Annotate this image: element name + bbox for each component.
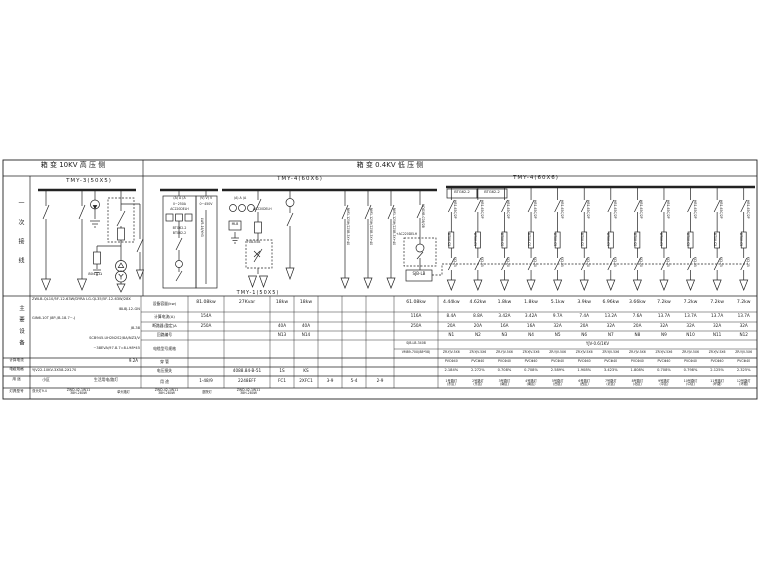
- feeder-meter-label: BT08-C5: [739, 233, 742, 259]
- table-cell: 16A: [518, 324, 545, 328]
- feeder-breaker-label: HB1-63C/2P: [480, 200, 483, 230]
- table-cell: 3.42A: [491, 314, 518, 318]
- feeder-contactor-label: KCJ-20: [639, 257, 642, 281]
- table-cell: 154A: [188, 314, 224, 318]
- table-cell: 4.44kw: [438, 301, 465, 306]
- lv-bus2-label: TMY-4(60X6): [496, 176, 576, 182]
- table-cell: 电缆型号规格: [141, 347, 188, 351]
- table-cell: PVCΦ40: [438, 360, 465, 363]
- feeder-contactor-label: KCJ-25: [745, 257, 748, 281]
- table-cell: 13.2A: [597, 314, 624, 318]
- schematic-lines: [0, 0, 760, 570]
- table-cell: 4.62kw: [465, 301, 492, 306]
- feeder-breaker-label: HB1-63C/2P: [453, 200, 456, 230]
- panel-a-range: 0~250A: [164, 203, 195, 206]
- feeder-breaker-label: HB1-63C/2P: [506, 200, 509, 230]
- control-box-label: SJB-LB: [406, 272, 432, 276]
- table-cell: 穿 管: [141, 360, 188, 364]
- feeder-contactor-label: KCJ-20: [506, 257, 509, 281]
- table-cell: 61.08kw: [394, 301, 438, 306]
- table-cell: 13.7A: [704, 314, 731, 318]
- table-cell: ZR-YJV-5X6: [544, 351, 571, 354]
- table-cell: 0.798%: [677, 369, 704, 373]
- feeder-breaker-label: HB1-63C/2P: [639, 200, 642, 230]
- panel-a-header: (A) A (A: [164, 197, 195, 200]
- table-cell: PVCΦ40: [730, 360, 757, 363]
- lv-title: 箱 变 0.4KV 低 压 侧: [250, 162, 530, 173]
- hv-ground-label: 8044.Ω: [78, 272, 102, 276]
- table-cell: N1: [438, 333, 465, 337]
- feeder-contactor-label: KCJ-25: [559, 257, 562, 281]
- lamp-name: 双头灯9.4: [30, 390, 49, 393]
- feeder-meter-label: BT08-C5: [606, 233, 609, 259]
- table-cell: 32A: [677, 324, 704, 328]
- panel-v-range: 0~450V: [196, 203, 216, 206]
- feeder-contactor-label: KCJ-25: [666, 257, 669, 281]
- table-cell: 3.66kw: [624, 301, 651, 306]
- table-cell: FC1: [270, 379, 294, 383]
- table-cell: PVCΦ40: [597, 360, 624, 363]
- special-feeder-breaker: HDGXB-C08/2B: [421, 204, 424, 238]
- lamp-model: ZWD-42-1W11 38H-280W: [140, 389, 193, 396]
- bus1-feeder-label: NM1-125H/225B-3X+40: [346, 208, 349, 250]
- table-cell: YJV-0.6/1KV: [438, 342, 757, 346]
- lv-riser-label: TMY-1(50X5): [230, 291, 286, 296]
- row-label-usage: 用 途: [4, 378, 29, 382]
- table-cell: 断路器(整定)A: [141, 324, 188, 328]
- table-cell: ZR-YJV-5X6: [597, 351, 624, 354]
- table-cell: N13: [270, 333, 294, 337]
- hv-bus-label: TMY-3(50X5): [52, 179, 126, 185]
- row-label-lamp: 灯具型号: [4, 390, 29, 394]
- table-cell: PVCΦ40: [465, 360, 492, 363]
- table-cell: PVCΦ40: [677, 360, 704, 363]
- incoming-aux: AC220DELH: [253, 208, 285, 211]
- panel-a-aux: AC220DELH: [163, 208, 196, 211]
- table-cell: 3.423%: [597, 369, 624, 373]
- table-cell: PVCΦ40: [518, 360, 545, 363]
- lamp-name: 单头路灯: [110, 391, 137, 394]
- panel-a-device: BT062-2: [164, 232, 195, 235]
- table-cell: 40A: [294, 324, 318, 328]
- panel-a-device: BTG62-2: [164, 227, 195, 230]
- table-cell: 20A: [438, 324, 465, 328]
- table-cell: 2号路灯 (东区): [465, 380, 492, 387]
- table-cell: 13.7A: [730, 314, 757, 318]
- table-cell: 5号路灯 (西区): [544, 380, 571, 387]
- table-cell: ZR-YJV-5X6: [438, 351, 465, 354]
- hv-equipment-spec: I8L8J-12-GN: [32, 308, 140, 312]
- table-cell: 2.325%: [730, 369, 757, 373]
- table-cell: 2248EFF: [224, 379, 270, 383]
- incoming-box-label: MLB: [229, 223, 241, 226]
- table-cell: 5-4: [342, 379, 366, 383]
- table-cell: 2.184%: [438, 369, 465, 373]
- table-cell: 11号路灯 (环路): [704, 380, 731, 387]
- feeder-meter-label: BT08-C5: [447, 233, 450, 259]
- feeder-breaker-label: HB1-63C/2P: [666, 200, 669, 230]
- table-cell: 8.8A: [465, 314, 492, 318]
- table-cell: PVCΦ40: [704, 360, 731, 363]
- table-cell: 3号路灯 (南区): [491, 380, 518, 387]
- feeder-breaker-label: HB1-63C/2P: [745, 200, 748, 230]
- hv-equipment-spec: SCB945-UH2N2S2/8A/NZ3/V: [32, 337, 140, 341]
- table-cell: ZR-YJV-5X6: [651, 351, 678, 354]
- lamp-name: 庭院灯: [197, 391, 217, 394]
- table-cell: N12: [730, 333, 757, 337]
- table-cell: 8.4A: [438, 314, 465, 318]
- row-label-cable: 电缆规格: [4, 368, 29, 372]
- table-cell: SJB-LB-3408: [394, 342, 438, 345]
- table-cell: PVCΦ40: [651, 360, 678, 363]
- drawing-canvas: 箱 变 10KV 高 压 侧 箱 变 0.4KV 低 压 侧 TMY-3(50X…: [0, 0, 760, 570]
- table-cell: 4088.84-B-51: [224, 369, 270, 373]
- table-cell: N7: [597, 333, 624, 337]
- table-cell: 2.272%: [465, 369, 492, 373]
- hv-usage: 生活用电/路灯: [74, 378, 138, 382]
- panel-v-selector: LW5-16/YH3: [200, 218, 203, 252]
- table-cell: 回路编号: [141, 333, 188, 337]
- table-cell: 2-9: [366, 379, 394, 383]
- feeder-meter-label: BT08-C5: [473, 233, 476, 259]
- table-cell: 7.4A: [571, 314, 598, 318]
- table-cell: 3-9: [318, 379, 342, 383]
- table-cell: 0.708%: [518, 369, 545, 373]
- feeder-contactor-label: KCJ-25: [692, 257, 695, 281]
- table-cell: PVCΦ40: [491, 360, 518, 363]
- table-cell: KS: [294, 369, 318, 373]
- table-cell: N5: [544, 333, 571, 337]
- table-cell: N11: [704, 333, 731, 337]
- feeder-breaker-label: HB1-63C/2P: [613, 200, 616, 230]
- feeder-meter-label: BT08-C5: [659, 233, 662, 259]
- feeder-contactor-label: KCJ-20: [533, 257, 536, 281]
- feeder-contactor-label: KCJ-20: [586, 257, 589, 281]
- table-cell: N9: [651, 333, 678, 337]
- table-cell: 1.908%: [571, 369, 598, 373]
- table-cell: PVCΦ40: [544, 360, 571, 363]
- table-cell: N10: [677, 333, 704, 337]
- hv-equipment-spec: ZWLB-QL10/5F-12-63W/DYRA LG-QL35/5F-12-6…: [32, 298, 140, 302]
- table-cell: 0.708%: [651, 369, 678, 373]
- feeder-contactor-label: KCJ-25: [453, 257, 456, 281]
- table-cell: 13.7A: [677, 314, 704, 318]
- bus1-feeder-label: NM1-125H/225B-3X+40: [369, 208, 372, 250]
- table-cell: ZR-YJV-5X6: [465, 351, 492, 354]
- feeder-meter-label: BT08-C0: [633, 233, 636, 259]
- table-cell: 用 途: [141, 380, 188, 384]
- table-cell: 1-48/9: [188, 379, 224, 383]
- table-cell: 6.96kw: [597, 301, 624, 306]
- table-cell: 250A: [394, 324, 438, 328]
- table-cell: 9号路灯 (中区): [651, 380, 678, 387]
- table-cell: 7.2kw: [730, 301, 757, 306]
- table-cell: N4: [518, 333, 545, 337]
- table-cell: 8号路灯 (北区): [624, 380, 651, 387]
- table-cell: 40A: [270, 324, 294, 328]
- table-cell: 18kw: [270, 301, 294, 306]
- table-cell: 7.2kw: [704, 301, 731, 306]
- table-cell: 20A: [465, 324, 492, 328]
- table-cell: 2.125%: [704, 369, 731, 373]
- table-cell: 3.42A: [518, 314, 545, 318]
- table-cell: 32A: [651, 324, 678, 328]
- table-cell: 250A: [188, 324, 224, 328]
- feeder-meter-label: BT08-C0: [526, 233, 529, 259]
- table-cell: 1号路灯 (东区): [438, 380, 465, 387]
- table-cell: 12号路灯 (环路): [730, 380, 757, 387]
- feeder-contactor-label: KCJ-25: [613, 257, 616, 281]
- table-cell: N8: [624, 333, 651, 337]
- table-cell: ZR-YJV-5X6: [677, 351, 704, 354]
- table-cell: N2: [465, 333, 492, 337]
- feeder-breaker-label: HB1-63C/2P: [559, 200, 562, 230]
- table-cell: 32A: [704, 324, 731, 328]
- table-cell: 电压损失: [141, 369, 188, 373]
- feeder-contactor-label: KCJ-25: [719, 257, 722, 281]
- table-cell: 32A: [544, 324, 571, 328]
- feeder-breaker-label: HB1-63C/2P: [692, 200, 695, 230]
- table-cell: N3: [491, 333, 518, 337]
- hv-equipment-spec: GIN6-10T J8P-/B-18.7~-J: [32, 317, 140, 321]
- feeder-meter-label: BT08-C5: [553, 233, 556, 259]
- feeder-breaker-label: HB1-63C/2P: [719, 200, 722, 230]
- table-cell: 16A: [491, 324, 518, 328]
- hv-usage: 小区: [34, 378, 58, 382]
- hv-equipment-spec: ~38EVA/97.8.7=8.L98*45: [32, 347, 140, 351]
- btg-cell: BTG62-2: [447, 191, 477, 195]
- table-cell: 计算电流(A): [141, 315, 188, 319]
- feeder-meter-label: BT08-C5: [686, 233, 689, 259]
- table-cell: 7号路灯 (北区): [597, 380, 624, 387]
- table-cell: 32A: [597, 324, 624, 328]
- hv-calc-current: 9.2A: [96, 359, 138, 363]
- feeder-contactor-label: KCJ-25: [480, 257, 483, 281]
- hv-title: 箱 变 10KV 高 压 侧: [3, 162, 143, 173]
- table-cell: 设备容量(kw): [141, 302, 188, 306]
- incoming-header: (A) A (A: [226, 197, 254, 200]
- table-cell: N14: [294, 333, 318, 337]
- table-cell: 7.2kw: [651, 301, 678, 306]
- table-cell: 27Kvar: [224, 301, 270, 306]
- table-cell: ZR-YJV-5X6: [624, 351, 651, 354]
- incoming-fusebox-label: FUB-K5B: [247, 241, 271, 244]
- feeder-meter-label: BT08-C0: [500, 233, 503, 259]
- table-cell: 1.8kw: [491, 301, 518, 306]
- strip-section-equipment: 主要设备: [7, 300, 23, 356]
- table-cell: 7.2kw: [677, 301, 704, 306]
- feeder-meter-label: BT08-C5: [712, 233, 715, 259]
- table-cell: 116A: [394, 314, 438, 318]
- table-cell: 1S: [270, 369, 294, 373]
- table-cell: 7.6A: [624, 314, 651, 318]
- table-cell: 3.9kw: [571, 301, 598, 306]
- table-cell: ZR-YJV-5X6: [518, 351, 545, 354]
- table-cell: 10号路灯 (中区): [677, 380, 704, 387]
- table-cell: 4号路灯 (南区): [518, 380, 545, 387]
- row-label-current: 计算电流: [4, 359, 29, 363]
- table-cell: 1.808%: [624, 369, 651, 373]
- table-cell: 20A: [624, 324, 651, 328]
- feeder-meter-label: BT08-C0: [579, 233, 582, 259]
- hv-cable-spec: YJV22-10KV-3X58-2X170: [32, 369, 140, 373]
- table-cell: 0.708%: [491, 369, 518, 373]
- table-cell: 18kw: [294, 301, 318, 306]
- table-cell: VM89-70X(88*58): [394, 351, 438, 354]
- table-cell: 1.8kw: [518, 301, 545, 306]
- btg-cell: BTG62-2: [477, 191, 507, 195]
- table-cell: 13.7A: [651, 314, 678, 318]
- lamp-model: ZWD-42-1W11 38H-280W: [50, 389, 107, 396]
- feeder-breaker-label: HB1-63C/2P: [586, 200, 589, 230]
- lamp-model: ZWD-42-1W11 38H-280W: [220, 389, 277, 396]
- table-cell: 32A: [730, 324, 757, 328]
- table-cell: 20A: [571, 324, 598, 328]
- table-cell: 2.589%: [544, 369, 571, 373]
- table-cell: ZR-YJV-5X6: [704, 351, 731, 354]
- bus1-feeder-label: NM1-125H/225B-3X+40: [392, 208, 395, 250]
- table-cell: 9.7A: [544, 314, 571, 318]
- table-cell: 6号路灯 (西区): [571, 380, 598, 387]
- table-cell: 5.1kw: [544, 301, 571, 306]
- lv-bus1-label: TMY-4(60X6): [260, 177, 340, 183]
- table-cell: ZR-YJV-5X6: [571, 351, 598, 354]
- table-cell: PVCΦ40: [571, 360, 598, 363]
- special-feeder-coil: +AC220DELH: [396, 233, 436, 236]
- table-cell: PVCΦ40: [624, 360, 651, 363]
- table-cell: 2XFC1: [294, 379, 318, 383]
- panel-v-header: (V) V) V: [196, 197, 216, 200]
- table-cell: 81.08kw: [188, 301, 224, 306]
- table-cell: ZR-YJV-5X6: [730, 351, 757, 354]
- feeder-breaker-label: HB1-63C/2P: [533, 200, 536, 230]
- hv-equipment-spec: J8-38: [32, 327, 140, 331]
- table-cell: ZR-YJV-5X6: [491, 351, 518, 354]
- table-cell: N6: [571, 333, 598, 337]
- strip-section-primary: 一次接线: [7, 184, 23, 292]
